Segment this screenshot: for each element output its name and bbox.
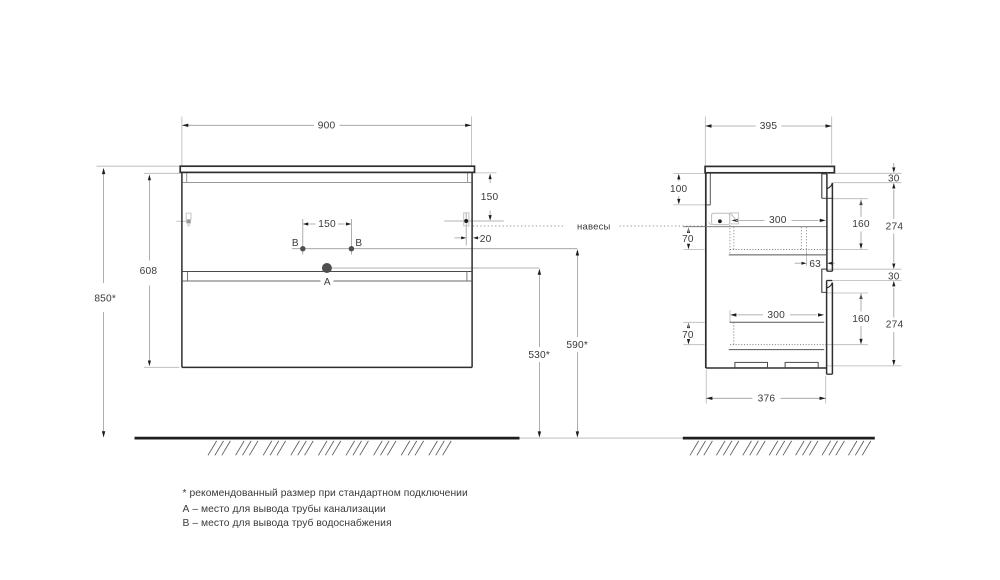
svg-text:30: 30 xyxy=(888,272,900,283)
svg-text:900: 900 xyxy=(318,121,336,132)
svg-text:150: 150 xyxy=(481,192,499,203)
svg-text:А – место для вывода трубы кан: А – место для вывода трубы канализации xyxy=(183,503,387,515)
svg-text:* рекомендованный размер при с: * рекомендованный размер при стандартном… xyxy=(183,488,468,499)
svg-text:274: 274 xyxy=(886,221,904,232)
svg-text:150: 150 xyxy=(318,219,336,230)
svg-text:300: 300 xyxy=(769,215,787,226)
svg-text:395: 395 xyxy=(760,121,778,132)
svg-text:160: 160 xyxy=(852,219,870,230)
svg-text:B: B xyxy=(292,238,299,249)
svg-text:63: 63 xyxy=(809,259,821,270)
svg-text:B: B xyxy=(355,238,362,249)
svg-text:20: 20 xyxy=(480,234,492,245)
svg-text:навесы: навесы xyxy=(577,221,611,232)
svg-text:160: 160 xyxy=(852,314,870,325)
svg-text:300: 300 xyxy=(767,310,785,321)
svg-text:590*: 590* xyxy=(566,340,588,351)
svg-text:376: 376 xyxy=(758,394,776,405)
svg-text:274: 274 xyxy=(886,320,904,331)
svg-text:30: 30 xyxy=(888,174,900,185)
svg-text:70: 70 xyxy=(682,330,694,341)
svg-text:В – место для вывода труб водо: В – место для вывода труб водоснабжения xyxy=(183,517,392,529)
svg-text:A: A xyxy=(324,277,331,288)
svg-text:530*: 530* xyxy=(528,350,550,361)
svg-text:608: 608 xyxy=(140,266,158,277)
svg-text:100: 100 xyxy=(670,184,688,195)
svg-text:70: 70 xyxy=(682,234,694,245)
svg-text:850*: 850* xyxy=(94,294,116,305)
